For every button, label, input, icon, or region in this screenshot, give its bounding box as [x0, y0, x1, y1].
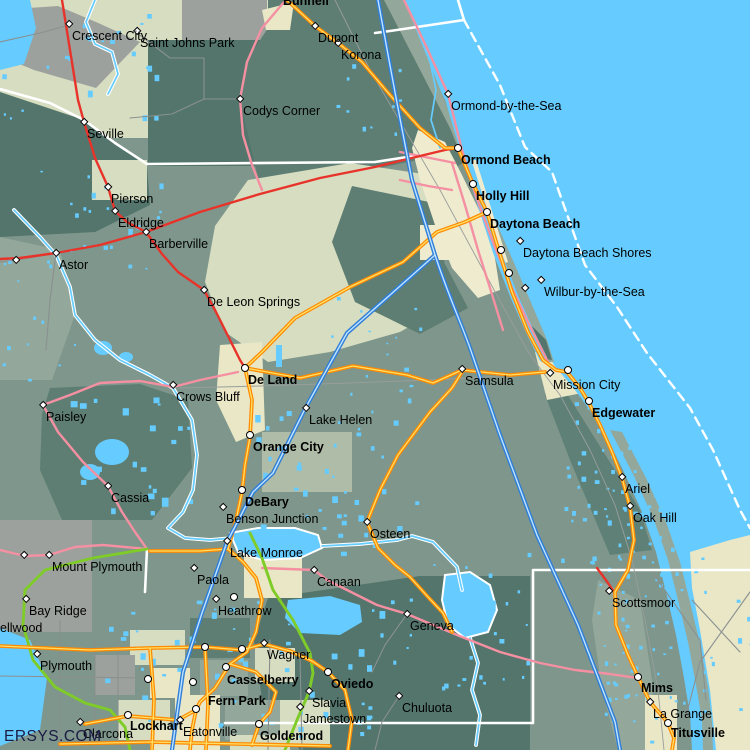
city-label: Samsula [465, 375, 514, 388]
city-marker-circle [497, 246, 505, 254]
city-marker-circle [189, 678, 197, 686]
city-marker-circle [144, 675, 152, 683]
city-label: Benson Junction [226, 513, 318, 526]
city-label: Seville [87, 128, 124, 141]
city-label: Chuluota [402, 702, 452, 715]
map-canvas[interactable]: Crescent CitySaint Johns ParkBunnellDupo… [0, 0, 750, 750]
city-marker-circle [505, 269, 513, 277]
city-label: Eldridge [118, 217, 164, 230]
city-label: Saint Johns Park [140, 37, 235, 50]
city-label: Mission City [553, 379, 620, 392]
city-label: Plymouth [40, 660, 92, 673]
city-label: Lake Monroe [230, 547, 303, 560]
city-marker-circle [246, 431, 254, 439]
city-label: Daytona Beach Shores [523, 247, 652, 260]
city-marker-circle [230, 593, 238, 601]
city-label: Heathrow [218, 605, 272, 618]
city-label: De Leon Springs [207, 296, 300, 309]
city-label: Codys Corner [243, 105, 320, 118]
city-label: Bunnell [283, 0, 329, 8]
city-label: ellwood [0, 622, 42, 635]
city-marker-circle [454, 144, 462, 152]
city-label: Scottsmoor [612, 597, 675, 610]
city-label: Wagner [267, 649, 310, 662]
city-label: Fern Park [208, 695, 266, 708]
city-label: Paola [197, 574, 229, 587]
city-marker-circle [324, 668, 332, 676]
city-label: Dupont [318, 32, 358, 45]
city-label: Goldenrod [260, 730, 323, 743]
city-label: Edgewater [592, 407, 655, 420]
city-marker-circle [585, 397, 593, 405]
city-label: DeBary [245, 496, 289, 509]
city-label: Titusville [671, 727, 725, 740]
city-label: Orange City [253, 441, 324, 454]
city-label: Mims [641, 682, 673, 695]
city-label: Korona [341, 49, 381, 62]
city-marker-circle [238, 645, 246, 653]
city-marker-circle [483, 208, 491, 216]
city-marker-circle [238, 486, 246, 494]
city-label: Crows Bluff [176, 391, 240, 404]
city-label: Canaan [317, 576, 361, 589]
city-label: Bay Ridge [29, 605, 87, 618]
city-label: Pierson [111, 193, 153, 206]
city-label: Ariel [625, 483, 650, 496]
city-label: Jamestown [303, 713, 366, 726]
city-label: Paisley [46, 411, 86, 424]
city-marker-circle [192, 705, 200, 713]
city-marker-circle [222, 663, 230, 671]
city-label: Oviedo [331, 678, 373, 691]
city-label: Casselberry [227, 674, 299, 687]
city-label: Crescent City [72, 30, 147, 43]
city-marker-circle [124, 711, 132, 719]
city-marker-circle [201, 643, 209, 651]
city-label: Holly Hill [476, 190, 529, 203]
city-label: Mount Plymouth [52, 561, 142, 574]
city-label: Wilbur-by-the-Sea [544, 286, 645, 299]
city-label: De Land [248, 374, 297, 387]
city-label: Lake Helen [309, 414, 372, 427]
map-terrain [0, 0, 750, 750]
city-label: Oak Hill [633, 512, 677, 525]
city-label: Ormond Beach [461, 154, 551, 167]
city-label: Barberville [149, 238, 208, 251]
city-label: Lockhart [130, 720, 183, 733]
city-label: Eatonville [183, 726, 237, 739]
city-marker-circle [564, 366, 572, 374]
city-label: Daytona Beach [490, 218, 580, 231]
city-marker-circle [469, 180, 477, 188]
city-label: La Grange [653, 708, 712, 721]
city-label: Ormond-by-the-Sea [451, 100, 561, 113]
city-label: Slavia [312, 697, 346, 710]
city-label: Astor [59, 259, 88, 272]
city-marker-circle [634, 673, 642, 681]
city-label: Cassia [111, 492, 149, 505]
city-label: Geneva [410, 620, 454, 633]
city-label: Osteen [370, 528, 410, 541]
city-marker-circle [255, 720, 263, 728]
city-marker-circle [241, 364, 249, 372]
watermark: ERSYS.COM [4, 728, 102, 746]
